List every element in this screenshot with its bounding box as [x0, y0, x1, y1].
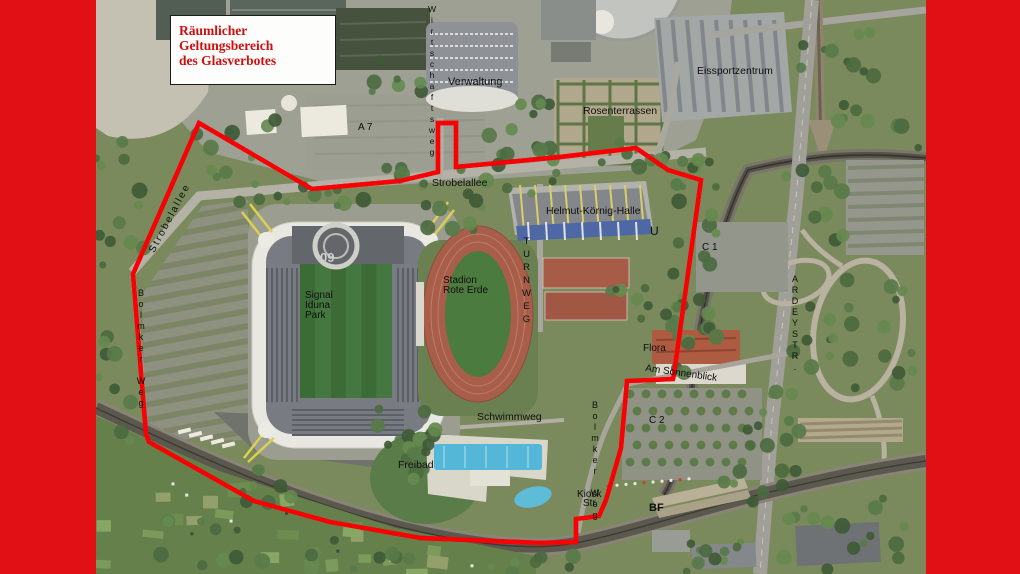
label-verwaltung: Verwaltung [448, 77, 502, 87]
label-eissportzentrum: Eissportzentrum [697, 66, 773, 76]
label-c2: C 2 [649, 416, 665, 426]
legend-box: Räumlicher Geltungsbereich des Glasverbo… [170, 15, 336, 85]
label-turnweg: TURNWEG [522, 236, 531, 327]
label-wirtschaftsweg: Wirtschaftsweg [427, 4, 436, 158]
screenshot-root: 09 [0, 0, 1020, 574]
verwaltung-building [426, 22, 518, 112]
aerial-photo: 09 [96, 0, 926, 574]
aerial-map: 09 [96, 0, 926, 574]
label-kiosk-2: Str. [583, 499, 598, 509]
side-bar [926, 0, 1020, 574]
label-bolmker-weg-west: Bolmker Weg [136, 288, 145, 409]
side-bar [0, 0, 96, 574]
legend-title-line2: des Glasverbotes [179, 53, 329, 68]
label-a7: A 7 [358, 123, 372, 133]
stadion-rote-erde [416, 226, 538, 416]
label-freibad: Freibad [398, 460, 434, 470]
bvb-roof-logo-text: 09 [320, 250, 334, 265]
label-signal-iduna-3: Park [305, 311, 326, 321]
label-c1: C 1 [702, 243, 718, 253]
label-flora: Flora [643, 344, 666, 354]
label-u-station: U [650, 226, 659, 236]
label-rosenterrassen: Rosenterrassen [583, 106, 657, 116]
label-ardeystr: ARDEYSTR. [790, 274, 799, 373]
label-rote-erde-2: Rote Erde [443, 286, 488, 296]
label-schwimmweg: Schwimmweg [477, 412, 542, 422]
label-helmut-koernig-halle: Helmut-Körnig-Halle [546, 206, 641, 216]
label-bf: BF [649, 503, 664, 513]
legend-title-line1: Räumlicher Geltungsbereich [179, 23, 329, 53]
label-strobelallee-top: Strobelallee [432, 178, 487, 188]
